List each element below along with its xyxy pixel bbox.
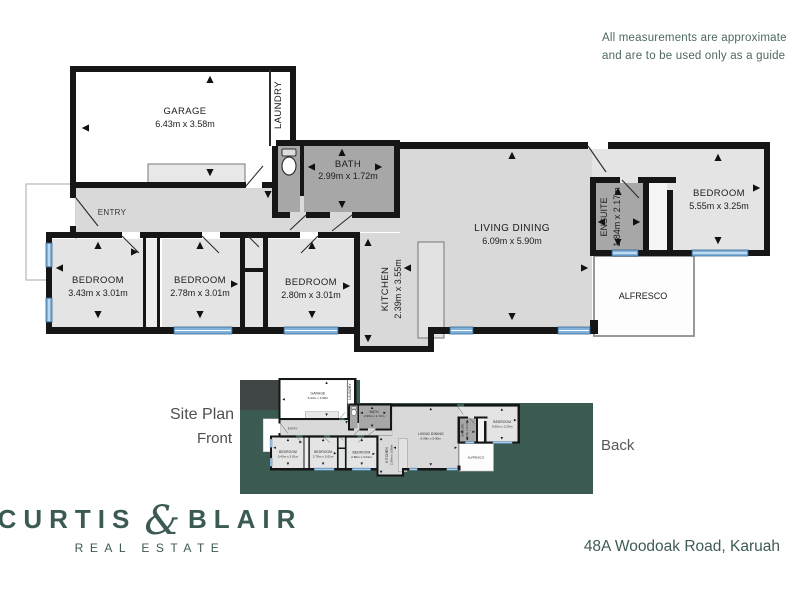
bedroom-main-dims: 5.55m x 3.25m	[689, 201, 749, 211]
brand-name-left: CURTIS	[0, 504, 136, 535]
kitchen-label: KITCHEN	[380, 267, 391, 312]
bedroom3-label: BEDROOM	[285, 277, 337, 288]
alfresco-label: ALFRESCO	[619, 291, 668, 301]
bedroom2-dims: 2.78m x 3.01m	[170, 288, 230, 298]
living-dims: 6.09m x 5.90m	[482, 236, 542, 246]
bedroom1-dims: 3.43m x 3.01m	[68, 288, 128, 298]
site-plan-mini	[263, 378, 520, 477]
floorplan-page: { "disclaimer": { "line1": "All measurem…	[0, 0, 800, 600]
robe-floor	[649, 183, 667, 250]
closet-floor	[245, 237, 263, 327]
living-label: LIVING DINING	[474, 223, 550, 234]
garage-label: GARAGE	[163, 106, 206, 117]
bedroom1-label: BEDROOM	[72, 275, 124, 286]
bedroom2-label: BEDROOM	[174, 275, 226, 286]
brand-ampersand: &	[144, 505, 180, 537]
ensuite-label: ENSUITE	[599, 197, 609, 236]
bedroom-main-label: BEDROOM	[693, 188, 745, 199]
entry-label: ENTRY	[98, 208, 127, 217]
site-plan-front-label: Front	[197, 430, 232, 447]
floor-plan: GARAGE 6.43m x 3.58m LAUNDRY BATH 2.99m …	[26, 66, 770, 352]
wardrobe-floor	[146, 239, 157, 327]
toilet-icon	[282, 149, 296, 175]
brand-logo: CURTIS & BLAIR REAL ESTATE	[20, 503, 280, 555]
brand-name-right: BLAIR	[188, 504, 302, 535]
site-plan-title: Site Plan	[170, 406, 234, 424]
bedroom3-dims: 2.80m x 3.01m	[281, 290, 341, 300]
kitchen-counter	[418, 242, 444, 338]
garage-dims: 6.43m x 3.58m	[155, 119, 215, 129]
property-address: 48A Woodoak Road, Karuah	[430, 538, 780, 556]
bath-label: BATH	[335, 159, 361, 170]
site-plan-back-label: Back	[601, 437, 634, 454]
ensuite-dims: 1.84m x 2.17m	[612, 187, 622, 247]
site-plan-driveway	[240, 380, 281, 410]
kitchen-dims: 2.39m x 3.55m	[393, 259, 403, 319]
bath-dims: 2.99m x 1.72m	[318, 171, 378, 181]
laundry-label: LAUNDRY	[273, 81, 284, 129]
